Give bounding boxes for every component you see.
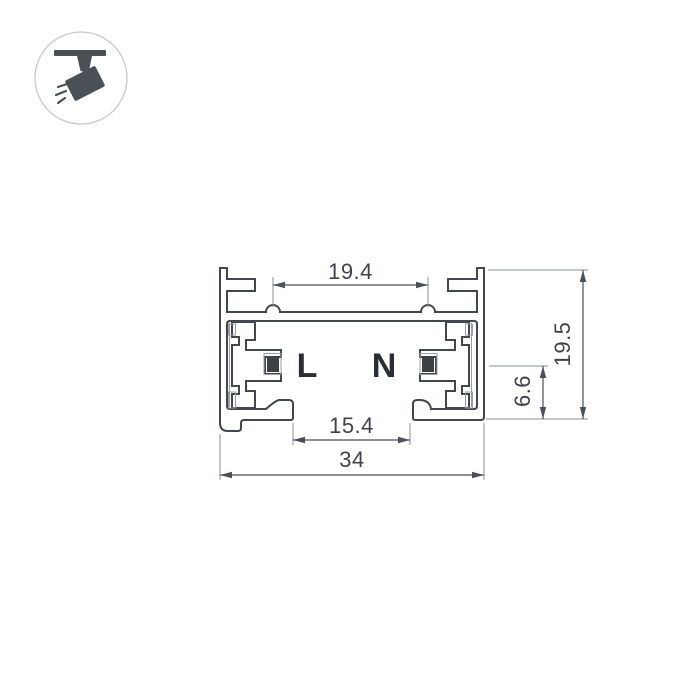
dim-total-height: 19.5	[486, 270, 588, 419]
arrowhead-right-icon	[416, 282, 428, 288]
arrowhead-left-icon	[273, 282, 285, 288]
dim-opening-width-value: 15.4	[329, 413, 374, 438]
drawing-canvas: L N 19.4 15.4	[0, 0, 700, 700]
dim-total-height-value: 19.5	[550, 322, 575, 367]
arrowhead-top-icon	[540, 366, 546, 378]
dim-top-width: 19.4	[273, 259, 428, 307]
arrowhead-left-icon	[220, 472, 232, 478]
dim-top-width-value: 19.4	[328, 259, 373, 284]
dim-total-width-value: 34	[339, 447, 364, 472]
dim-opening-width: 15.4	[293, 413, 410, 445]
logo-badge	[35, 32, 127, 124]
page: L N 19.4 15.4	[0, 0, 700, 700]
right-conductor	[423, 357, 434, 372]
neutral-label: N	[372, 347, 397, 385]
arrowhead-bottom-icon	[540, 407, 546, 419]
arrowhead-right-icon	[472, 472, 484, 478]
left-conductor	[268, 357, 279, 372]
arrowhead-right-icon	[398, 437, 410, 443]
arrowhead-left-icon	[293, 437, 305, 443]
dim-conductor-height: 6.6	[489, 366, 548, 419]
track-bar	[54, 50, 106, 56]
arrowhead-bottom-icon	[580, 407, 586, 419]
dim-conductor-height-value: 6.6	[510, 375, 535, 407]
arrowhead-top-icon	[580, 270, 586, 282]
live-label: L	[297, 347, 318, 385]
profile-drawing	[220, 268, 484, 431]
